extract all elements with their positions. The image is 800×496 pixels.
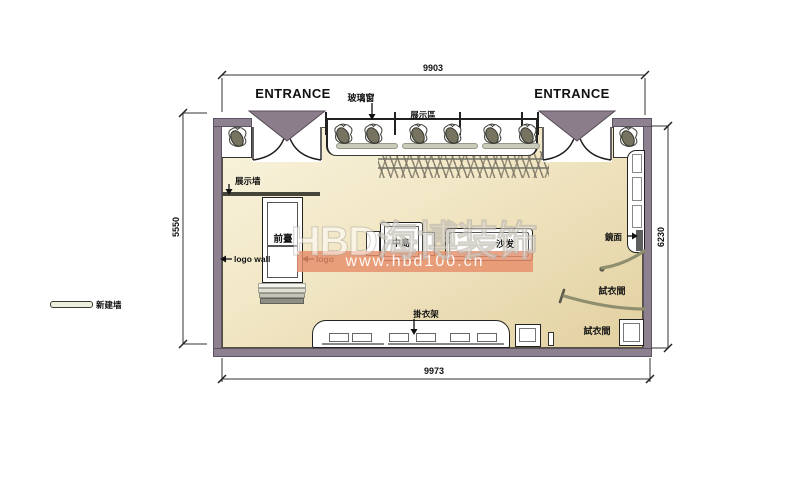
partition-stub: [548, 332, 554, 346]
rack-base: [388, 343, 452, 345]
logo-label: logo: [316, 254, 334, 264]
wall-bottom: [213, 348, 652, 357]
front-desk-divider: [267, 245, 298, 247]
cabinet-box-inner: [519, 328, 536, 342]
glass-display-window: [326, 118, 538, 156]
wall-top-left: [213, 118, 252, 127]
window-jamb: [537, 112, 539, 135]
mirror-label: 鏡面: [605, 231, 622, 243]
window-platform: [482, 143, 540, 149]
cabinet-shelf: [632, 205, 642, 228]
wall-left: [213, 118, 222, 357]
new-wall-legend-label: 新建墙: [96, 299, 122, 311]
rack-base: [322, 343, 384, 345]
wall-top-right: [612, 118, 652, 127]
folded-garment: [416, 333, 436, 342]
glass-window-label: 玻璃窗: [347, 91, 374, 104]
rack-base: [446, 343, 504, 345]
new-wall-legend-swatch: [50, 301, 93, 308]
fitting-room-label-top: 試衣間: [598, 284, 625, 297]
logo-wall-label: logo wall: [234, 254, 270, 264]
window-mullion: [521, 112, 523, 135]
center-island-label: 中島: [392, 236, 410, 249]
dimension-right: 6230: [656, 217, 666, 257]
floor-plan-drawing: ENTRANCE ENTRANCE 9903 9973 5550 6230 玻璃…: [0, 0, 800, 496]
cabinet-shelf: [632, 154, 642, 173]
cabinet-shelf: [632, 177, 642, 201]
island-side-unit: [421, 232, 435, 256]
folded-garment: [352, 333, 372, 342]
window-platform: [402, 143, 478, 149]
entrance-label-left: ENTRANCE: [255, 86, 330, 101]
entrance-label-right: ENTRANCE: [534, 86, 609, 101]
sofa-label: 沙发: [496, 237, 514, 250]
folded-garment: [389, 333, 409, 342]
window-platform: [336, 143, 398, 149]
display-wall-partition: [222, 192, 320, 196]
dimension-bottom: 9973: [424, 366, 444, 376]
mirror-panel: [636, 230, 643, 251]
window-mullion: [394, 112, 396, 135]
sofa-table-inner: [449, 232, 529, 257]
front-desk-label: 前臺: [273, 231, 292, 245]
folded-garment: [329, 333, 349, 342]
desk-step: [260, 298, 304, 304]
fitting-room-stool-inner: [623, 323, 640, 342]
folded-garment: [477, 333, 497, 342]
window-mullion: [459, 112, 461, 135]
fitting-room-label-bottom: 試衣間: [583, 324, 610, 337]
folded-garment: [450, 333, 470, 342]
hanging-rack-label: 掛衣架: [413, 308, 439, 320]
display-area-label: 展示區: [410, 109, 436, 121]
display-wall-label: 展示墙: [235, 175, 261, 187]
dimension-top: 9903: [423, 63, 443, 73]
window-jamb: [325, 112, 327, 135]
dimension-left: 5550: [171, 207, 181, 247]
island-side-unit: [366, 231, 380, 256]
display-nook-left: [222, 127, 252, 158]
